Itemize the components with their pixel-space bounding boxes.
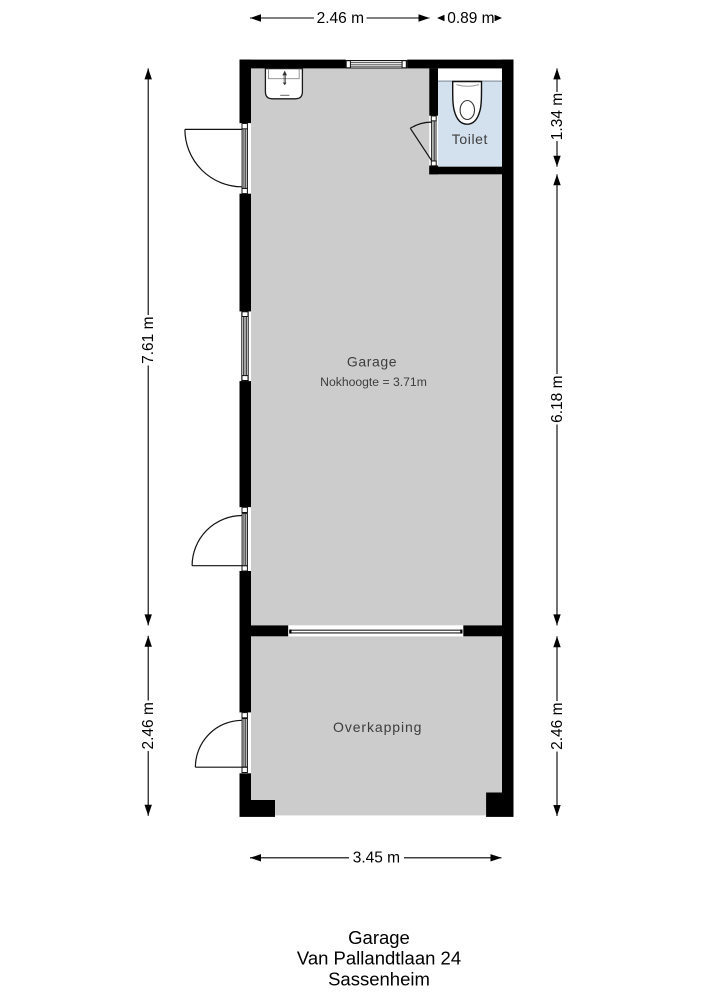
svg-text:2.46 m: 2.46 m <box>549 703 566 750</box>
svg-text:Garage: Garage <box>348 927 410 948</box>
svg-text:7.61 m: 7.61 m <box>140 317 157 364</box>
svg-text:Overkapping: Overkapping <box>333 719 422 735</box>
svg-text:Toilet: Toilet <box>452 131 488 147</box>
svg-text:0.89 m: 0.89 m <box>447 10 494 27</box>
svg-text:2.46 m: 2.46 m <box>140 702 157 749</box>
svg-text:Van Pallandtlaan 24: Van Pallandtlaan 24 <box>297 948 461 969</box>
svg-text:3.45 m: 3.45 m <box>353 850 400 867</box>
svg-text:2.46 m: 2.46 m <box>317 10 364 27</box>
svg-text:Garage: Garage <box>347 353 397 369</box>
svg-text:1.34 m: 1.34 m <box>549 93 566 140</box>
svg-text:Sassenheim: Sassenheim <box>328 968 430 989</box>
svg-text:6.18 m: 6.18 m <box>549 376 566 423</box>
svg-text:Nokhoogte = 3.71m: Nokhoogte = 3.71m <box>320 375 427 389</box>
